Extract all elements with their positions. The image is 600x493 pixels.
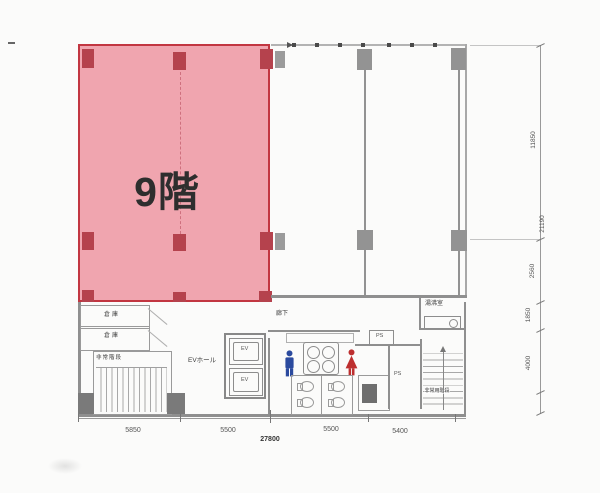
dimension-tick xyxy=(180,414,181,422)
gridline-arrow xyxy=(287,42,293,48)
kitchenette-left-wall xyxy=(419,296,421,330)
wash-island xyxy=(303,342,339,375)
elevator-2-label: EV xyxy=(241,378,248,384)
corridor-label: 廊下 xyxy=(276,311,288,317)
men-restroom-icon xyxy=(283,350,296,377)
floor-plan-canvas: 9階 倉庫 倉庫 非常階段 EVホール xyxy=(0,0,600,493)
partition-wall xyxy=(388,344,390,409)
stall-divider xyxy=(321,376,322,414)
core-right-wall xyxy=(464,302,466,416)
column xyxy=(173,292,186,302)
restroom-top-wall xyxy=(268,330,360,332)
kitchenette-counter xyxy=(424,316,461,329)
column xyxy=(82,290,94,302)
dim-right-2560: 2560 xyxy=(529,251,537,291)
column xyxy=(451,48,466,70)
dim-right-11850: 11850 xyxy=(530,120,538,160)
toilet-fixture xyxy=(297,381,312,391)
grid-extension xyxy=(470,45,540,46)
mullion-tick xyxy=(361,43,365,47)
highlighted-floor-area: 9階 xyxy=(78,44,270,302)
ps-top-label: PS xyxy=(376,334,383,340)
toilet-fixture xyxy=(297,397,312,407)
exterior-wall-right xyxy=(465,44,467,298)
column xyxy=(260,49,273,69)
washbasin xyxy=(307,360,320,373)
column xyxy=(167,393,185,414)
washbasin xyxy=(322,346,335,359)
door-swing xyxy=(148,330,168,347)
ev-hall-label: EVホール xyxy=(188,358,216,365)
dimension-tick xyxy=(455,414,456,422)
right-stair-label: 非常用階段 xyxy=(424,388,450,394)
column xyxy=(357,49,372,70)
floor-label: 9階 xyxy=(80,158,254,218)
restroom-left-wall xyxy=(268,338,270,414)
dim-right-1850: 1850 xyxy=(525,295,533,335)
core-top-wall xyxy=(271,295,467,298)
stair-centerline xyxy=(443,352,444,410)
dim-bottom-5500b: 5500 xyxy=(311,426,351,434)
column xyxy=(82,232,94,250)
partition-wall xyxy=(420,339,422,409)
page-corner-tick xyxy=(8,42,15,44)
partition-wall xyxy=(364,70,366,297)
mullion-tick xyxy=(338,43,342,47)
ps-mid-label: PS xyxy=(394,372,401,378)
sink xyxy=(449,319,458,328)
dim-bottom-5400: 5400 xyxy=(380,428,420,436)
duct-block xyxy=(362,384,377,403)
women-restroom-icon xyxy=(345,349,358,376)
dimension-tick xyxy=(78,414,79,422)
column xyxy=(173,234,186,251)
column xyxy=(173,52,186,70)
dimension-tick xyxy=(536,411,545,416)
door-swing xyxy=(148,308,168,325)
washbasin xyxy=(307,346,320,359)
toilet-stalls xyxy=(291,375,353,415)
storage-room-bottom-label: 倉庫 xyxy=(104,333,120,339)
column xyxy=(260,232,273,250)
dim-right-21190: 21190 xyxy=(539,204,547,244)
storage-room-top-label: 倉庫 xyxy=(104,312,120,318)
column xyxy=(275,233,285,250)
column xyxy=(78,393,94,414)
dim-bottom-5500a: 5500 xyxy=(208,427,248,435)
left-stair-label: 非常階段 xyxy=(96,356,122,362)
mullion-tick xyxy=(410,43,414,47)
dimension-line-bottom xyxy=(78,418,466,419)
dimension-tick xyxy=(270,410,271,423)
dim-bottom-total-27800: 27800 xyxy=(250,436,290,444)
elevator-1-label: EV xyxy=(241,347,248,353)
mullion-tick xyxy=(433,43,437,47)
stair-direction-arrow xyxy=(440,346,446,352)
washbasin xyxy=(322,360,335,373)
column xyxy=(357,230,373,250)
dim-bottom-5850: 5850 xyxy=(113,427,153,435)
partition-wall xyxy=(458,70,460,297)
column xyxy=(275,51,285,68)
kitchenette-label: 湯沸室 xyxy=(425,301,443,307)
dimension-tick xyxy=(368,414,369,422)
grid-extension xyxy=(470,239,540,240)
scan-smudge xyxy=(48,458,82,474)
mullion-tick xyxy=(387,43,391,47)
exterior-wall-top xyxy=(271,44,467,46)
column xyxy=(82,49,94,68)
mullion-tick xyxy=(315,43,319,47)
stair-treads xyxy=(96,367,167,412)
dim-right-4000: 4000 xyxy=(525,343,533,383)
toilet-fixture xyxy=(328,397,343,407)
column xyxy=(451,230,467,251)
toilet-fixture xyxy=(328,381,343,391)
